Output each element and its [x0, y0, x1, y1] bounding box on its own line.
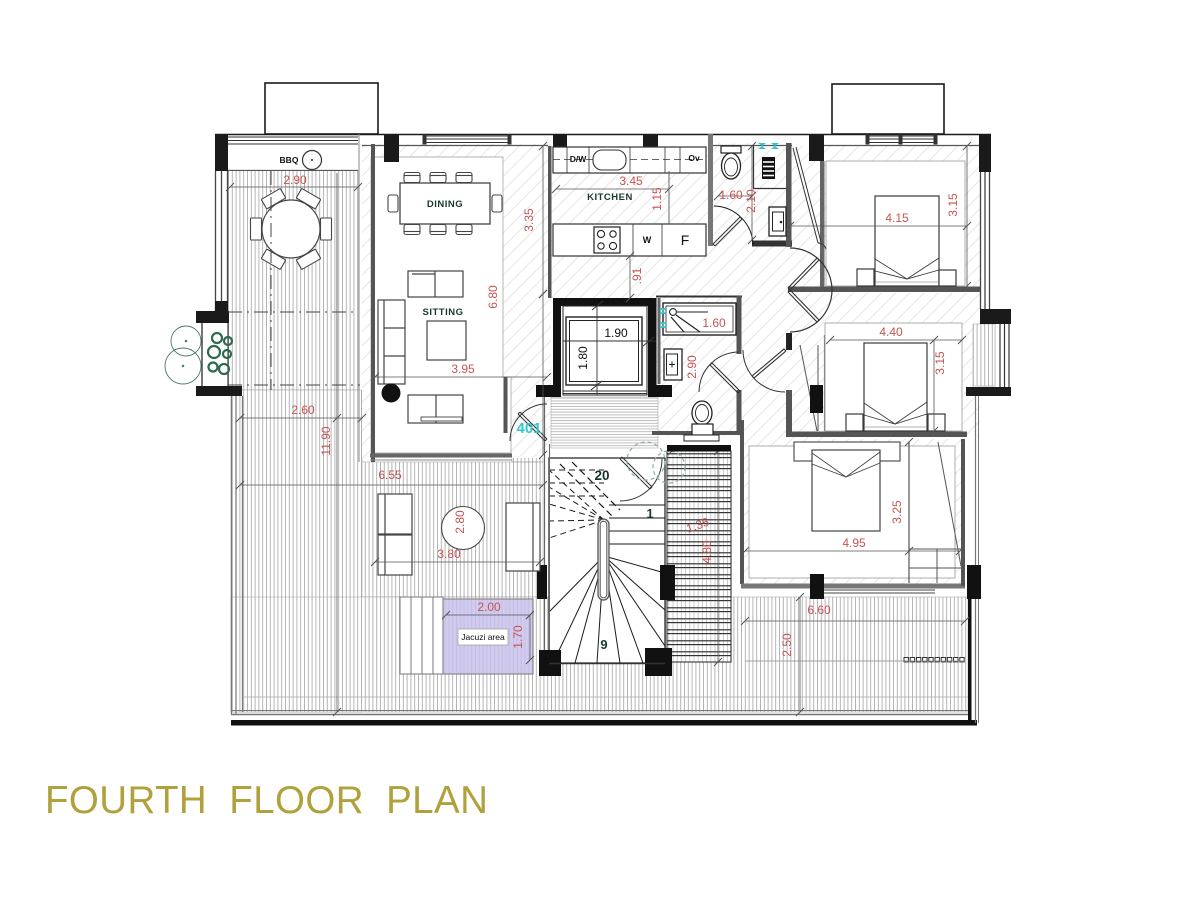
svg-text:401: 401 [516, 420, 541, 437]
svg-text:SITTING: SITTING [423, 307, 464, 318]
svg-text:6.60: 6.60 [807, 603, 831, 617]
svg-text:3.25: 3.25 [890, 500, 904, 524]
svg-text:3.15: 3.15 [946, 193, 960, 217]
svg-text:1.60: 1.60 [719, 188, 743, 202]
svg-text:2.10: 2.10 [744, 189, 758, 213]
svg-text:2.00: 2.00 [477, 600, 501, 614]
svg-text:1.80: 1.80 [576, 346, 590, 370]
svg-text:.91: .91 [630, 267, 644, 284]
svg-text:1.70: 1.70 [511, 625, 525, 649]
svg-text:DINING: DINING [427, 199, 463, 210]
svg-text:1.15: 1.15 [650, 187, 664, 211]
svg-text:4.15: 4.15 [885, 211, 909, 225]
svg-text:6.80: 6.80 [486, 285, 500, 309]
svg-text:20: 20 [594, 468, 609, 483]
svg-text:2.50: 2.50 [780, 633, 794, 657]
svg-text:2.80: 2.80 [453, 510, 467, 534]
svg-text:9: 9 [600, 637, 607, 652]
svg-text:1: 1 [646, 506, 653, 521]
svg-text:F: F [681, 232, 690, 248]
svg-text:1.90: 1.90 [604, 326, 628, 340]
svg-text:KITCHEN: KITCHEN [587, 192, 633, 203]
svg-text:W: W [643, 235, 652, 245]
svg-text:FOURTH FLOOR PLAN: FOURTH FLOOR PLAN [45, 779, 488, 822]
svg-text:BBQ: BBQ [280, 155, 299, 165]
svg-text:2.60: 2.60 [291, 403, 315, 417]
svg-text:3.45: 3.45 [619, 174, 643, 188]
svg-text:Ov: Ov [688, 153, 700, 163]
svg-text:2.90: 2.90 [685, 355, 699, 379]
svg-text:6.55: 6.55 [378, 468, 402, 482]
svg-text:4.80: 4.80 [700, 540, 714, 564]
svg-text:D/W: D/W [570, 154, 588, 164]
svg-text:1.60: 1.60 [702, 316, 726, 330]
svg-text:3.15: 3.15 [933, 351, 947, 375]
svg-text:3.95: 3.95 [451, 362, 475, 376]
svg-text:2.90: 2.90 [283, 173, 307, 187]
svg-text:4.95: 4.95 [842, 536, 866, 550]
svg-text:4.40: 4.40 [879, 325, 903, 339]
svg-text:Jacuzi area: Jacuzi area [461, 632, 505, 642]
svg-text:3.35: 3.35 [522, 208, 536, 232]
svg-text:3.80: 3.80 [437, 547, 461, 561]
svg-text:11.90: 11.90 [319, 426, 333, 455]
